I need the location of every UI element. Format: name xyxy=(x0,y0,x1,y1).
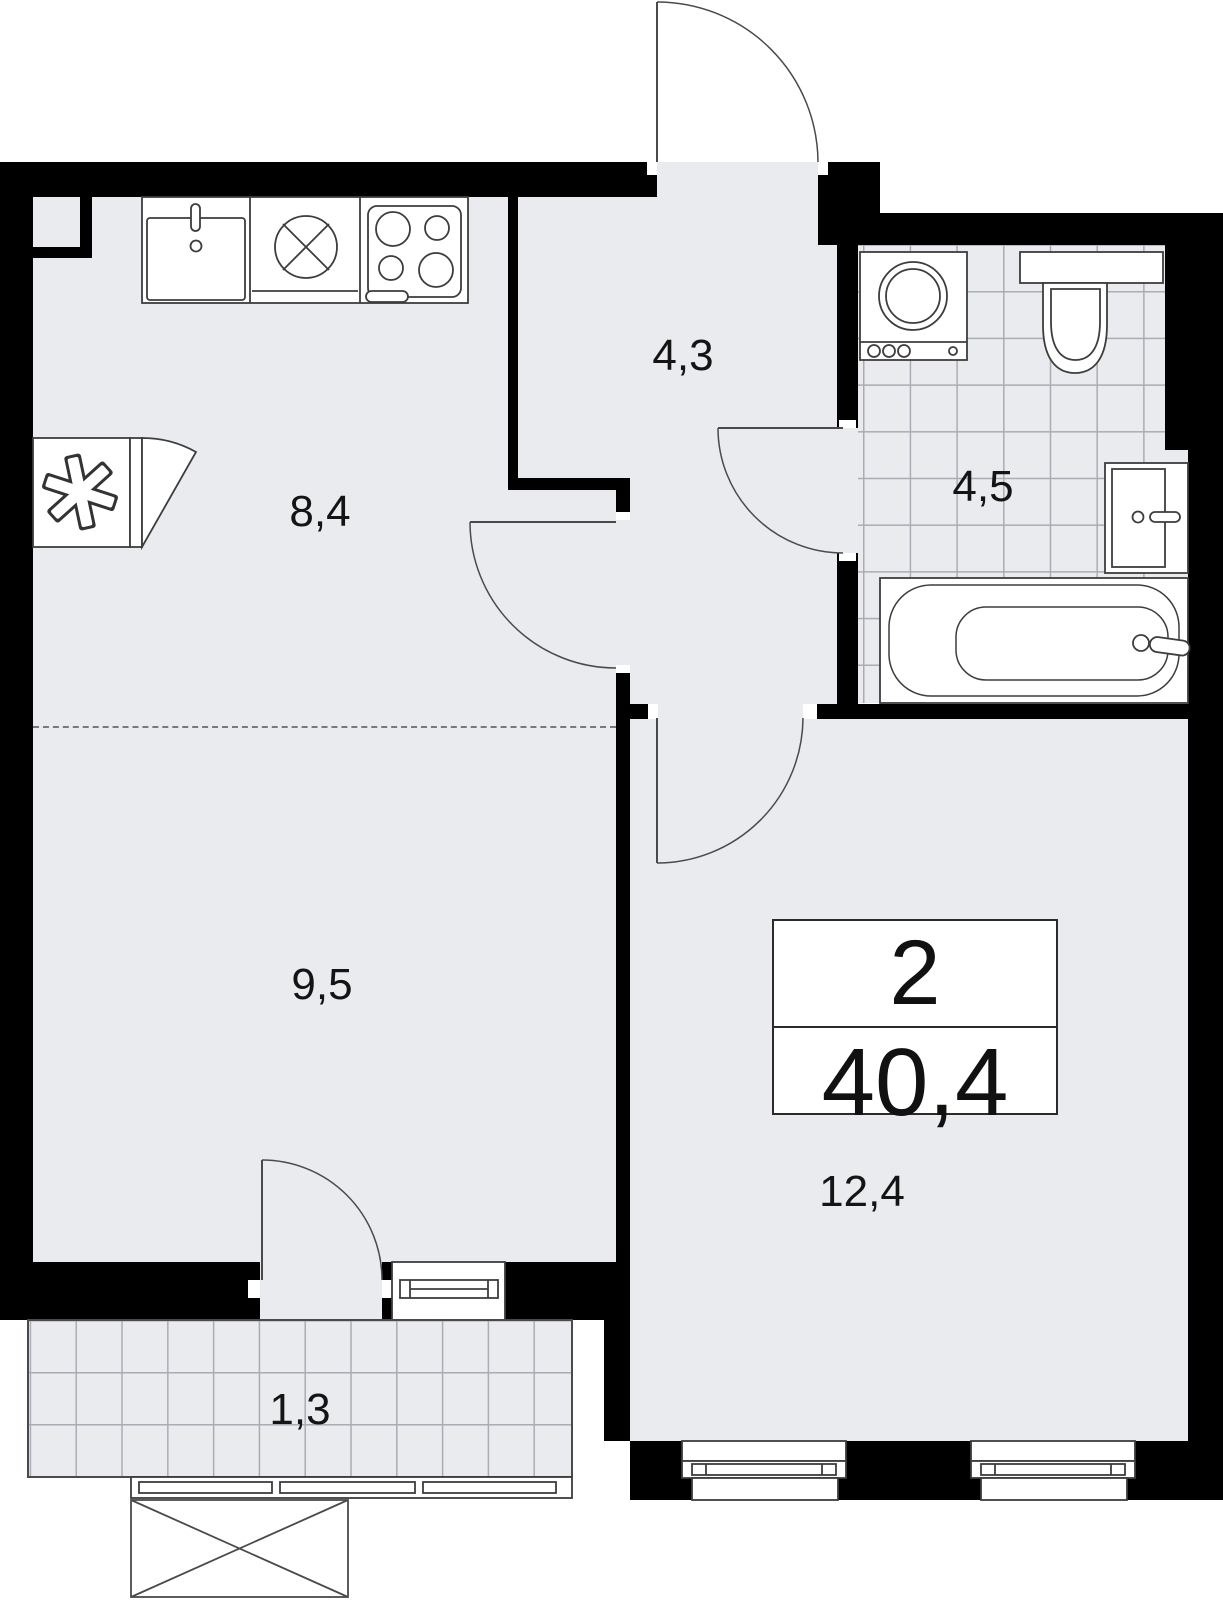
room-label-kitchen: 8,4 xyxy=(289,487,350,537)
room-label-living: 9,5 xyxy=(291,960,352,1010)
bedroom-window xyxy=(682,1441,846,1500)
washing-machine-icon xyxy=(860,252,967,360)
balcony-railing xyxy=(131,1477,572,1498)
wash-basin-icon xyxy=(1105,463,1188,573)
balcony-door-icon xyxy=(262,1160,382,1280)
room-count: 2 xyxy=(774,921,1056,1028)
room-label-bedroom: 12,4 xyxy=(819,1167,905,1217)
room-label-hallway: 4,3 xyxy=(652,331,713,381)
bedroom-window xyxy=(971,1441,1135,1500)
bathroom-door-icon xyxy=(718,428,843,553)
total-area: 40,4 xyxy=(774,1028,1056,1138)
kitchen-door-icon xyxy=(470,522,616,668)
room-label-bathroom: 4,5 xyxy=(952,462,1013,512)
bedroom-door-icon xyxy=(657,718,803,863)
fixtures-overlay xyxy=(0,0,1223,1600)
balcony-window xyxy=(392,1262,505,1320)
balcony-structure-box xyxy=(131,1500,348,1597)
bathtub-icon xyxy=(880,578,1191,703)
toilet-icon xyxy=(1020,252,1163,373)
room-label-balcony: 1,3 xyxy=(269,1385,330,1435)
floor-plan: 8,4 4,3 4,5 9,5 12,4 1,3 2 40,4 xyxy=(0,0,1223,1600)
entrance-door-icon xyxy=(657,2,818,162)
apartment-info-box: 2 40,4 xyxy=(772,919,1058,1115)
